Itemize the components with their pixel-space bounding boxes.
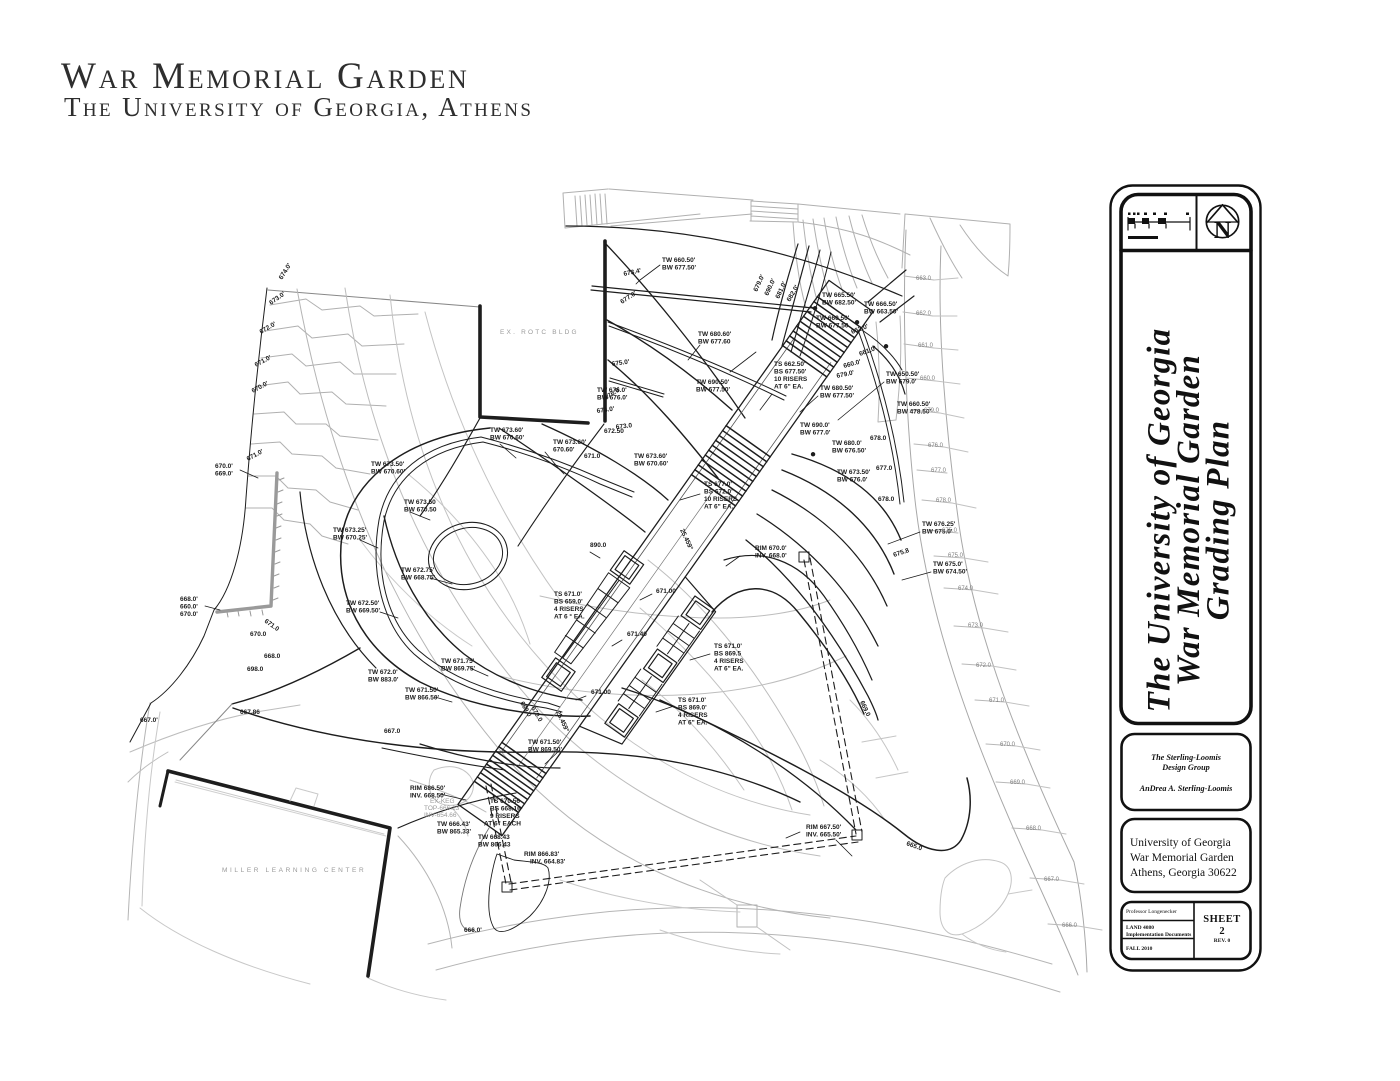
svg-text:TW 666.50'BW 663.50': TW 666.50'BW 663.50' <box>864 301 899 316</box>
svg-text:TW 675.0'BW 674.50': TW 675.0'BW 674.50' <box>933 561 968 576</box>
svg-text:TS 662.50'BS 677.50'10 RISERSA: TS 662.50'BS 677.50'10 RISERSAT 6" EA. <box>774 361 808 391</box>
svg-text:670.0'669.0': 670.0'669.0' <box>215 463 233 478</box>
svg-text:677.0': 677.0' <box>619 290 638 306</box>
svg-text:668.0: 668.0 <box>1026 826 1042 832</box>
svg-text:667.0: 667.0 <box>384 728 401 735</box>
svg-text:679.0': 679.0' <box>836 369 855 380</box>
svg-text:TW 671.50'BW 866.50': TW 671.50'BW 866.50' <box>405 687 440 702</box>
svg-text:University of Georgia: University of Georgia <box>1130 837 1231 849</box>
svg-text:TW 650.50'BW 679.0': TW 650.50'BW 679.0' <box>886 371 920 386</box>
svg-text:675.8: 675.8 <box>892 547 910 559</box>
svg-text:RIM 667.50'INV. 665.50': RIM 667.50'INV. 665.50' <box>806 824 842 839</box>
svg-text:TS 671.0'BS 869.54 RISERSAT 6": TS 671.0'BS 869.54 RISERSAT 6" EA. <box>714 643 744 673</box>
svg-text:TW 673.50BW 670.50: TW 673.50BW 670.50 <box>404 499 437 514</box>
svg-text:679.0: 679.0 <box>924 408 940 414</box>
svg-text:674.0': 674.0' <box>278 262 294 281</box>
svg-text:TW 673.60'670.60': TW 673.60'670.60' <box>553 439 587 454</box>
svg-text:EX. ROTC BLDG: EX. ROTC BLDG <box>500 329 579 336</box>
svg-text:TW 665.50'BW 682.50': TW 665.50'BW 682.50' <box>822 292 857 307</box>
svg-text:TW 673.50'BW 670.60': TW 673.50'BW 670.60' <box>371 461 406 476</box>
svg-text:671.0: 671.0 <box>584 453 601 460</box>
svg-text:671.0': 671.0' <box>246 448 265 463</box>
svg-text:669.0: 669.0 <box>858 700 871 718</box>
svg-text:Implementation Documents: Implementation Documents <box>1126 932 1191 938</box>
svg-text:SHEET: SHEET <box>1203 914 1241 925</box>
svg-text:25.459°: 25.459° <box>554 709 571 733</box>
svg-text:TW 673.60'BW 670.60': TW 673.60'BW 670.60' <box>490 427 525 442</box>
svg-text:TS 671.0'BS 869.0'4 RISERSAT 6: TS 671.0'BS 869.0'4 RISERSAT 6" EA. <box>678 697 708 727</box>
svg-text:TW 680.0'BW 676.50': TW 680.0'BW 676.50' <box>832 440 867 455</box>
svg-text:TS 677.0'BS 672.0'10 RISERSAT: TS 677.0'BS 672.0'10 RISERSAT 6" EA. <box>704 481 738 511</box>
svg-text:672.0': 672.0' <box>259 321 278 336</box>
svg-text:War Memorial Garden: War Memorial Garden <box>1130 852 1234 864</box>
svg-text:677.0: 677.0 <box>931 468 947 474</box>
svg-text:890.0: 890.0 <box>590 542 607 549</box>
svg-text:678.0: 678.0 <box>870 435 887 442</box>
svg-text:669.0: 669.0 <box>1010 780 1026 786</box>
svg-text:676.0: 676.0 <box>928 443 944 449</box>
svg-text:Design Group: Design Group <box>1161 763 1210 772</box>
svg-text:TW 672.75'BW 668.75': TW 672.75'BW 668.75' <box>401 567 436 582</box>
svg-text:677.0: 677.0 <box>876 465 893 472</box>
svg-text:FALL 2010: FALL 2010 <box>1126 946 1153 952</box>
svg-text:TW 660.50'BW 677.50: TW 660.50'BW 677.50 <box>816 315 850 330</box>
svg-text:TW 690.0'BW 677.0': TW 690.0'BW 677.0' <box>800 422 831 437</box>
svg-text:678.0: 678.0 <box>936 498 952 504</box>
svg-text:Professor Longenecker: Professor Longenecker <box>1126 908 1177 915</box>
svg-text:N: N <box>1214 218 1232 244</box>
svg-text:678.0: 678.0 <box>878 496 895 503</box>
svg-text:668.0'660.0'670.0': 668.0'660.0'670.0' <box>180 596 198 618</box>
svg-text:671.00: 671.00 <box>656 588 676 595</box>
svg-text:668.0: 668.0 <box>264 653 281 660</box>
svg-text:671.40: 671.40 <box>627 631 647 638</box>
svg-text:TW 672.50'BW 669.50': TW 672.50'BW 669.50' <box>346 600 381 615</box>
svg-text:670.0: 670.0 <box>1000 742 1016 748</box>
svg-text:667.86: 667.86 <box>240 709 260 716</box>
svg-text:670.0: 670.0 <box>250 631 267 638</box>
svg-text:661.0: 661.0 <box>918 343 934 349</box>
svg-text:672.0: 672.0 <box>976 663 992 669</box>
svg-text:666.0': 666.0' <box>464 927 482 934</box>
svg-text:TW 660.50'BW 677.50': TW 660.50'BW 677.50' <box>662 257 697 272</box>
svg-text:667.0: 667.0 <box>1044 877 1060 883</box>
svg-text:TW 671.75'BW 869.75': TW 671.75'BW 869.75' <box>441 658 476 673</box>
svg-text:TW 673.25'BW 670.25': TW 673.25'BW 670.25' <box>333 527 368 542</box>
svg-text:TW 673.60'BW 670.60': TW 673.60'BW 670.60' <box>634 453 669 468</box>
svg-text:RIM 866.83'INV. 664.83': RIM 866.83'INV. 664.83' <box>524 851 566 866</box>
svg-text:TW 680.50'BW 677.50': TW 680.50'BW 677.50' <box>820 385 855 400</box>
svg-text:660.0': 660.0' <box>843 358 862 369</box>
svg-text:TW 673.50'BW 676.0': TW 673.50'BW 676.0' <box>837 469 871 484</box>
svg-text:674.0': 674.0' <box>596 406 615 415</box>
svg-text:698.0: 698.0 <box>247 666 264 673</box>
svg-text:TW 690.50'BW 677.50': TW 690.50'BW 677.50' <box>696 379 731 394</box>
svg-text:671.0: 671.0 <box>989 698 1005 704</box>
svg-text:TS 671.0'BS 659.0'4 RISERSAT 6: TS 671.0'BS 659.0'4 RISERSAT 6 ° EA. <box>554 591 585 621</box>
svg-text:665.0: 665.0 <box>905 840 923 852</box>
svg-text:AnDrea A. Sterling-Loomis: AnDrea A. Sterling-Loomis <box>1139 784 1233 793</box>
svg-text:RIM 670.0'INV. 668.0': RIM 670.0'INV. 668.0' <box>755 545 787 560</box>
svg-text:TS 670.56BS 668.169 RISERSAT 6: TS 670.56BS 668.169 RISERSAT 6" EACH <box>484 798 521 828</box>
svg-text:682.0': 682.0' <box>786 284 801 303</box>
svg-text:661.0': 661.0' <box>858 345 878 358</box>
svg-text:670.0': 670.0' <box>251 380 270 395</box>
svg-text:671.00: 671.00 <box>591 689 611 696</box>
svg-text:675.0': 675.0' <box>611 359 630 368</box>
svg-text:TW 672.0'BW 883.0': TW 672.0'BW 883.0' <box>368 669 399 684</box>
svg-text:2: 2 <box>1219 926 1224 937</box>
svg-text:673.4': 673.4' <box>623 267 642 278</box>
svg-text:TW 666.43'BW 865.33': TW 666.43'BW 865.33' <box>437 821 472 836</box>
svg-text:662.0: 662.0 <box>916 311 932 317</box>
svg-text:666.0: 666.0 <box>1062 923 1078 929</box>
svg-text:25.459°: 25.459° <box>678 527 695 551</box>
svg-text:Athens, Georgia 30622: Athens, Georgia 30622 <box>1130 867 1237 879</box>
svg-text:LAND 4080: LAND 4080 <box>1126 925 1154 931</box>
svg-text:671.0': 671.0' <box>254 354 273 369</box>
svg-text:REV. 0: REV. 0 <box>1214 938 1231 944</box>
svg-text:674.0: 674.0 <box>958 586 974 592</box>
svg-text:667.0': 667.0' <box>140 717 158 724</box>
svg-text:TW 680.60'BW 677.60: TW 680.60'BW 677.60 <box>698 331 732 346</box>
svg-text:Grading Plan: Grading Plan <box>1201 420 1237 621</box>
svg-text:663.0: 663.0 <box>916 276 932 282</box>
svg-text:MILLER LEARNING CENTER: MILLER LEARNING CENTER <box>222 867 366 874</box>
svg-text:660.0: 660.0 <box>920 376 936 382</box>
svg-text:TW 676.0'BW 676.0': TW 676.0'BW 676.0' <box>597 387 628 402</box>
svg-text:TW 671.50'BW 869.50': TW 671.50'BW 869.50' <box>528 739 563 754</box>
svg-text:672.50: 672.50 <box>604 428 624 435</box>
svg-text:675.0: 675.0 <box>948 553 964 559</box>
svg-text:675.0: 675.0 <box>942 528 958 534</box>
svg-text:673.0: 673.0 <box>968 623 984 629</box>
svg-text:EX-KEGTOP-666.13INV-654.66: EX-KEGTOP-666.13INV-654.66 <box>424 798 460 819</box>
svg-text:TW 668.43BW 866.43: TW 668.43BW 866.43 <box>478 834 511 849</box>
svg-text:The Sterling-Loomis: The Sterling-Loomis <box>1151 753 1221 762</box>
